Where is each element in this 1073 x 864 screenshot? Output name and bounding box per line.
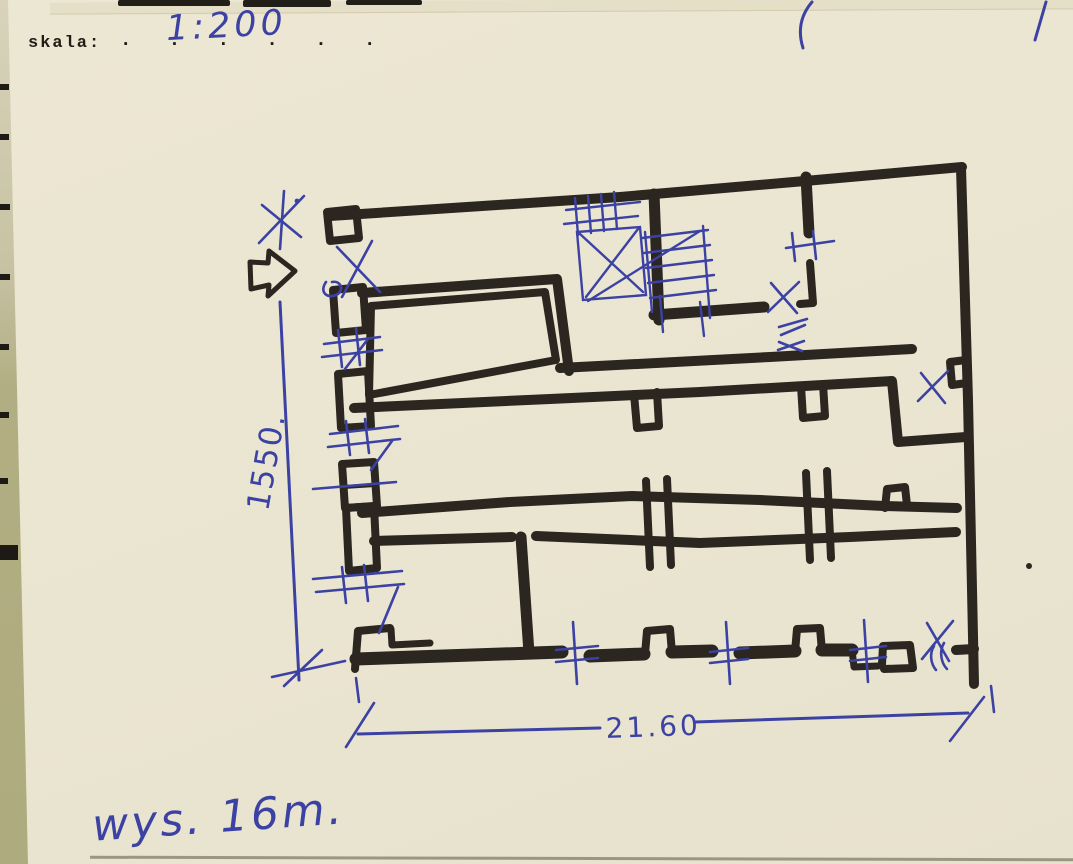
bottom-wall <box>672 651 712 652</box>
floor-plan-sketch: 1550. 21.60 <box>0 0 1073 864</box>
door-x-mark <box>778 341 804 351</box>
door-x-mark <box>768 282 799 313</box>
scanned-sketch-page: skala: . . . . . . 1:200 wys. 16m. <box>0 0 1073 864</box>
left-wall-pilaster <box>327 209 359 241</box>
ink-dot <box>1026 563 1032 569</box>
dim-horizontal-label: 21.60 <box>605 709 701 745</box>
door-x-mark <box>918 371 948 403</box>
room-inner-wall <box>369 292 556 395</box>
pen-squiggle <box>931 643 947 670</box>
north-arrow-icon <box>250 251 295 296</box>
cross-pilaster <box>806 471 831 560</box>
interior-wall-vertical <box>806 177 809 233</box>
lower-wall-upper <box>362 496 957 513</box>
bottom-wall <box>590 654 644 656</box>
cutoff-pen-stroke <box>1035 2 1046 40</box>
door-x-mark <box>779 319 807 335</box>
window-hatch-mark <box>371 441 392 470</box>
door-x-mark <box>922 621 953 661</box>
pen-dot <box>295 199 300 204</box>
dim-tick <box>272 650 345 686</box>
cutoff-pen-stroke <box>800 2 812 48</box>
right-wall <box>961 168 974 684</box>
bottom-wall <box>356 652 562 659</box>
dim-vertical-label: 1550. <box>240 410 293 514</box>
spine-wall-upper <box>560 349 912 368</box>
top-wall <box>330 167 962 216</box>
door-jamb <box>800 263 813 304</box>
dim-extension-mark <box>356 678 994 712</box>
pen-annotations <box>259 2 1046 747</box>
lower-wall-lower <box>374 532 956 543</box>
bottom-wall <box>956 649 974 650</box>
dim-line-vertical <box>280 302 299 680</box>
bottom-wall <box>740 651 795 653</box>
interior-wall-vertical <box>521 537 529 653</box>
bottom-corner-step <box>391 629 430 645</box>
